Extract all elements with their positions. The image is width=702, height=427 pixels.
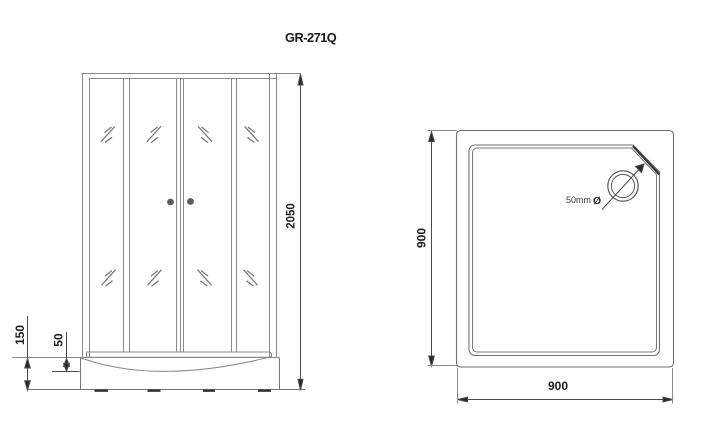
svg-text:50: 50	[51, 333, 65, 347]
svg-text:2050: 2050	[285, 203, 297, 229]
svg-text:Ø: Ø	[593, 195, 601, 207]
svg-text:900: 900	[548, 379, 568, 393]
svg-text:150: 150	[13, 325, 27, 345]
svg-text:GR-271Q: GR-271Q	[285, 30, 337, 45]
svg-text:50mm: 50mm	[566, 195, 591, 205]
svg-text:900: 900	[415, 228, 429, 248]
